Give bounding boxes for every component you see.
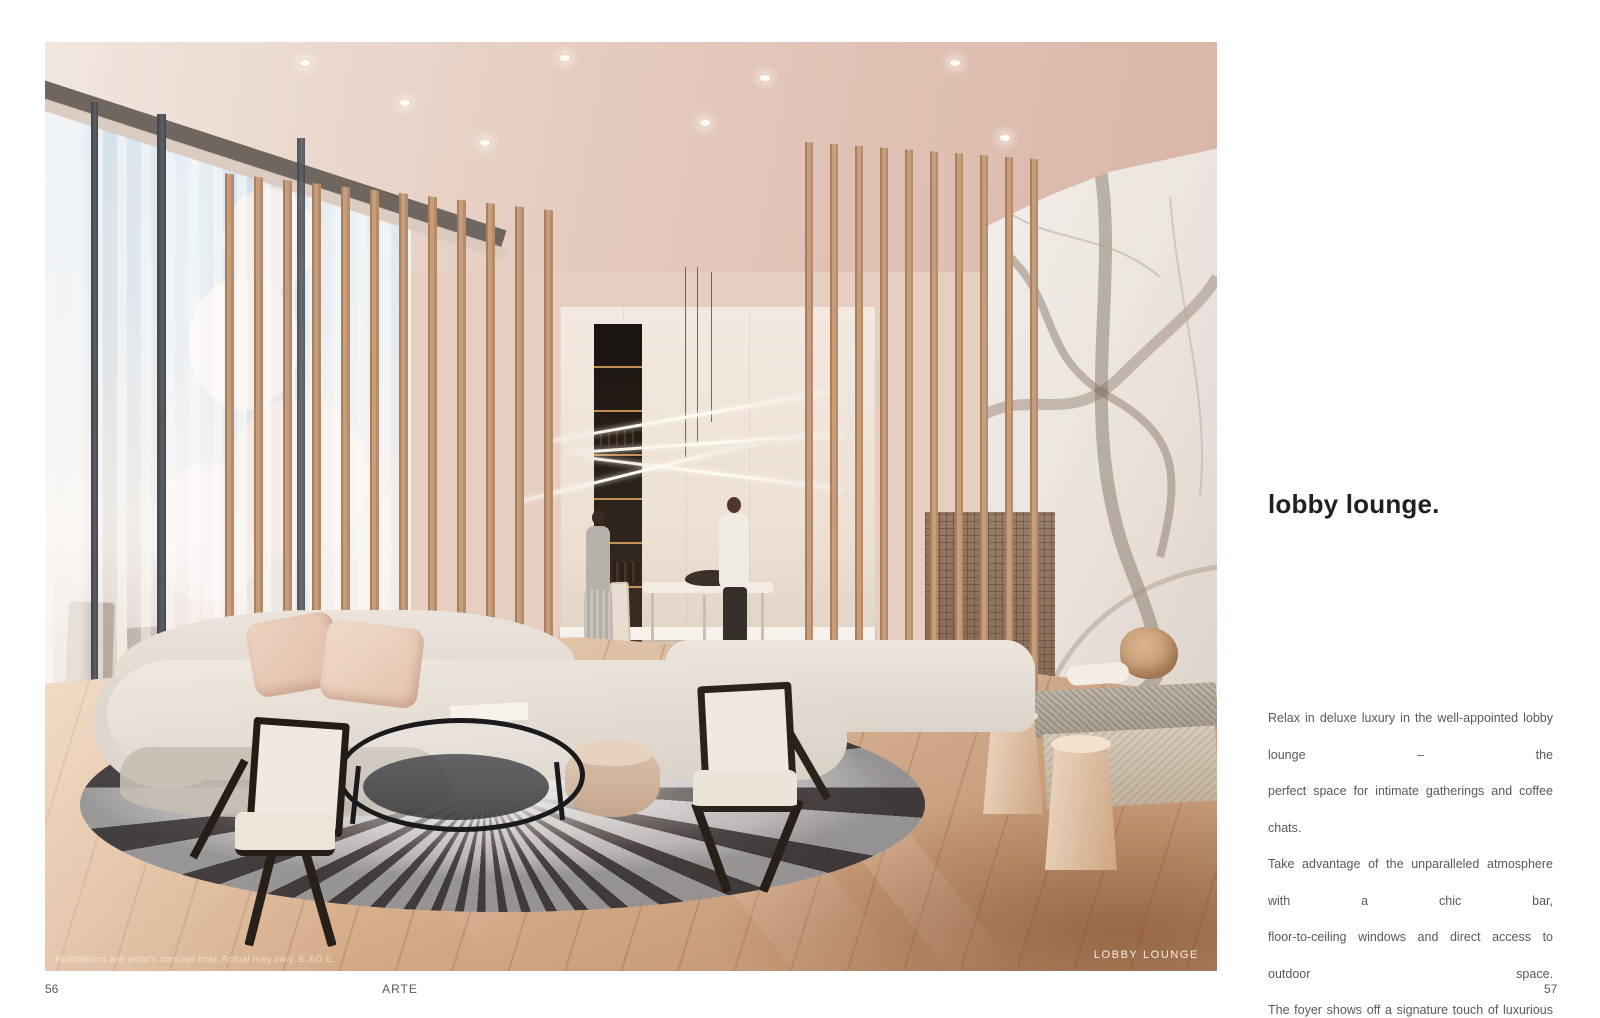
photo-caption: LOBBY LOUNGE <box>1094 949 1199 961</box>
downlight-icon <box>700 120 710 126</box>
downlight-icon <box>560 55 570 61</box>
body-line: Relax in deluxe luxury in the well-appoi… <box>1268 700 1553 773</box>
photo-woman <box>586 526 610 598</box>
page-number-right: 57 <box>1544 982 1557 996</box>
lobby-lounge-photo: Illustrations are artist's concept only.… <box>45 42 1217 971</box>
downlight-icon <box>480 140 490 146</box>
photo-disclaimer: Illustrations are artist's concept only.… <box>55 954 335 965</box>
photo-wood-stool <box>1051 735 1111 753</box>
photo-coffee-table <box>337 718 585 832</box>
page-number-left: 56 <box>45 982 58 996</box>
photo-pouf <box>571 740 654 766</box>
photo-woman <box>592 510 605 525</box>
downlight-icon <box>950 60 960 66</box>
photo-pillow <box>318 618 425 709</box>
downlight-icon <box>1000 135 1010 141</box>
photo-window-mullion <box>91 102 98 762</box>
page-title: lobby lounge. <box>1268 489 1440 520</box>
body-line: The foyer shows off a signature touch of… <box>1268 992 1553 1018</box>
photo-pendant-cord <box>711 272 712 422</box>
photo-armchair <box>235 812 335 856</box>
brochure-spread: Illustrations are artist's concept only.… <box>0 0 1600 1018</box>
photo-wood-stool <box>1045 742 1117 870</box>
downlight-icon <box>760 75 770 81</box>
photo-man <box>719 514 749 589</box>
body-paragraph: Relax in deluxe luxury in the well-appoi… <box>1268 700 1553 1018</box>
body-line: Take advantage of the unparalleled atmos… <box>1268 846 1553 919</box>
body-line: perfect space for intimate gatherings an… <box>1268 773 1553 846</box>
downlight-icon <box>400 100 410 106</box>
footer-brand: ARTE <box>340 982 460 996</box>
photo-man <box>727 497 741 513</box>
photo-pendant-cord <box>685 267 686 457</box>
body-line: floor-to-ceiling windows and direct acce… <box>1268 919 1553 992</box>
photo-armchair <box>693 770 797 812</box>
downlight-icon <box>300 60 310 66</box>
